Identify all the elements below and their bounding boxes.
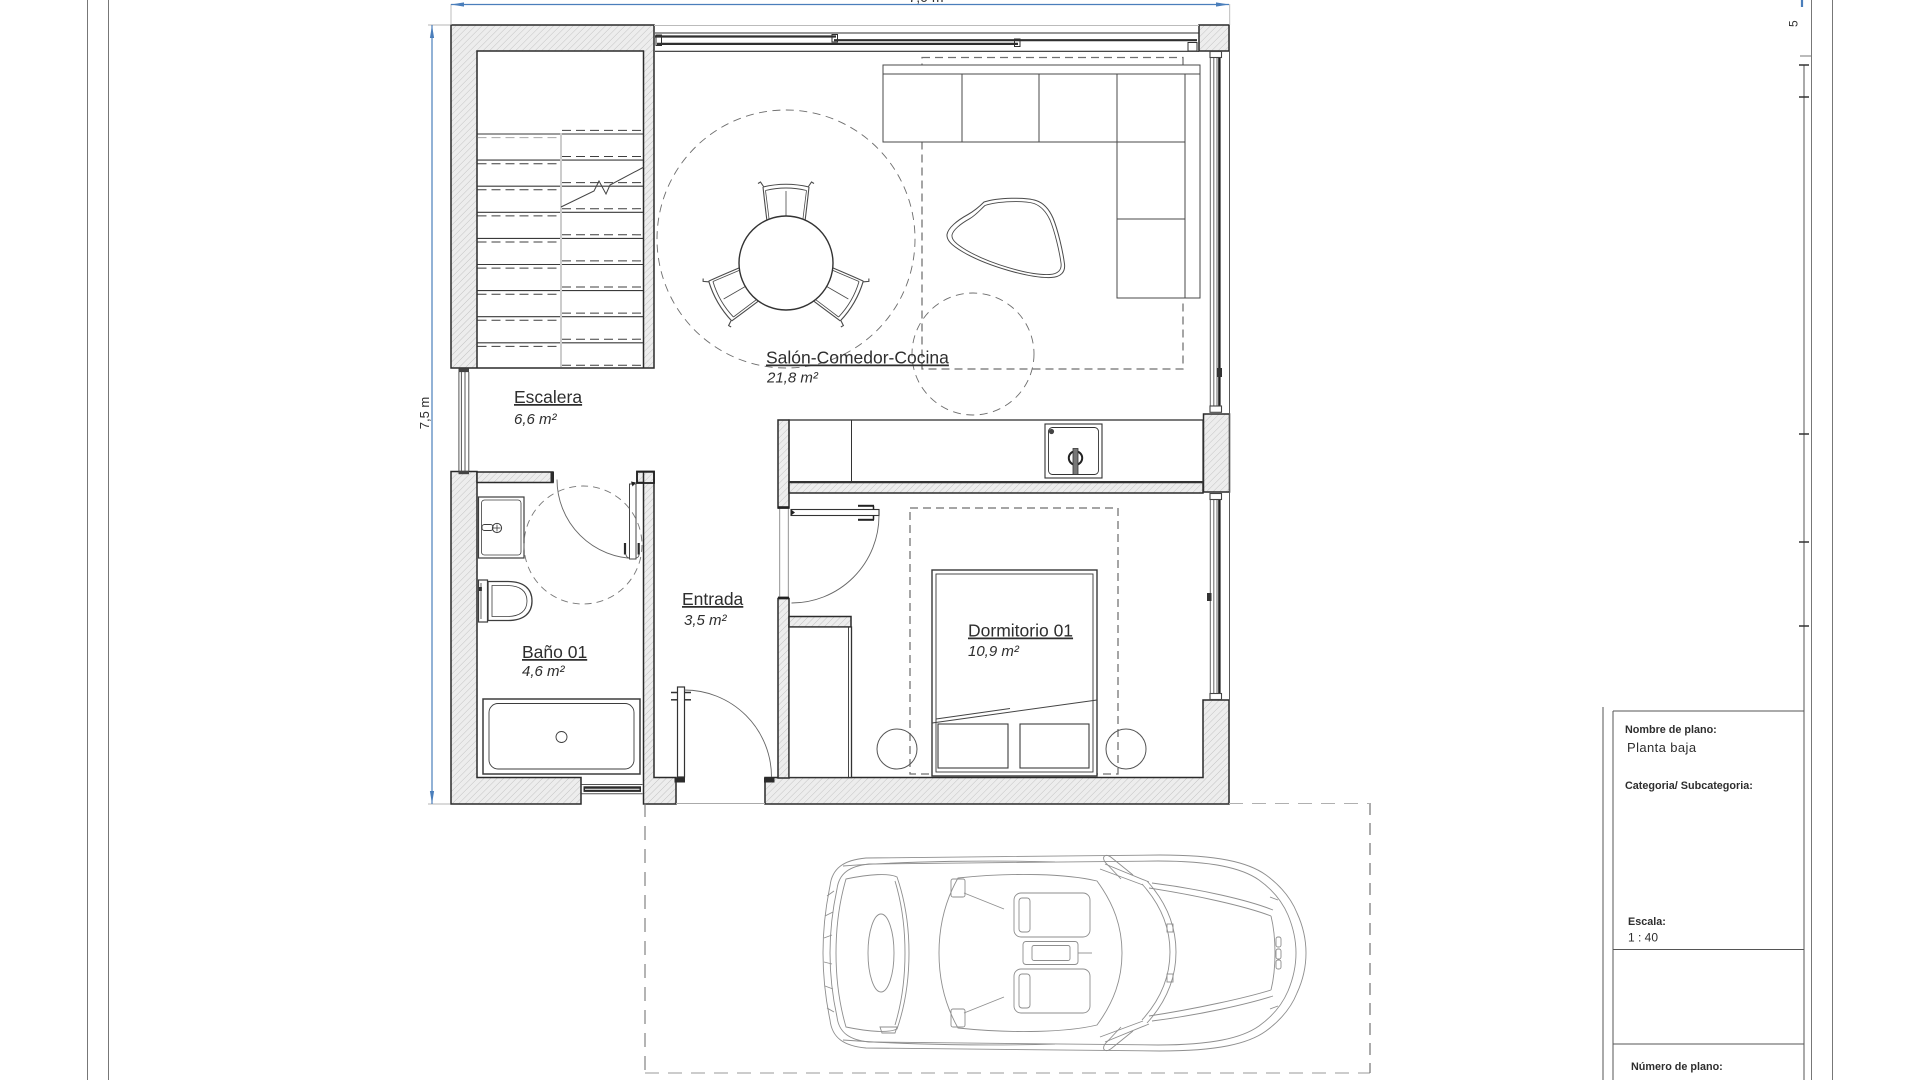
svg-text:Planta baja: Planta baja <box>1627 740 1697 755</box>
svg-text:Nombre de plano:: Nombre de plano: <box>1625 724 1717 736</box>
svg-text:1 : 40: 1 : 40 <box>1628 931 1658 945</box>
svg-text:Escalera: Escalera <box>514 387 582 407</box>
svg-text:21,8 m²: 21,8 m² <box>766 370 819 387</box>
svg-text:4,6 m²: 4,6 m² <box>522 663 566 680</box>
svg-text:Dormitorio 01: Dormitorio 01 <box>968 621 1073 641</box>
svg-text:7,0 m: 7,0 m <box>908 0 943 5</box>
svg-text:6,6 m²: 6,6 m² <box>514 411 558 428</box>
svg-text:Número de plano:: Número de plano: <box>1631 1061 1723 1073</box>
svg-text:Escala:: Escala: <box>1628 916 1666 928</box>
svg-text:7,5 m: 7,5 m <box>417 397 432 430</box>
svg-text:5: 5 <box>1787 20 1801 27</box>
svg-text:Categoria/ Subcategoria:: Categoria/ Subcategoria: <box>1625 780 1753 792</box>
svg-text:3,5 m²: 3,5 m² <box>684 612 728 629</box>
svg-text:Entrada: Entrada <box>682 589 744 609</box>
svg-text:10,9 m²: 10,9 m² <box>968 643 1020 660</box>
svg-text:Baño 01: Baño 01 <box>522 642 587 662</box>
svg-text:Salón-Comedor-Cocina: Salón-Comedor-Cocina <box>766 348 949 368</box>
